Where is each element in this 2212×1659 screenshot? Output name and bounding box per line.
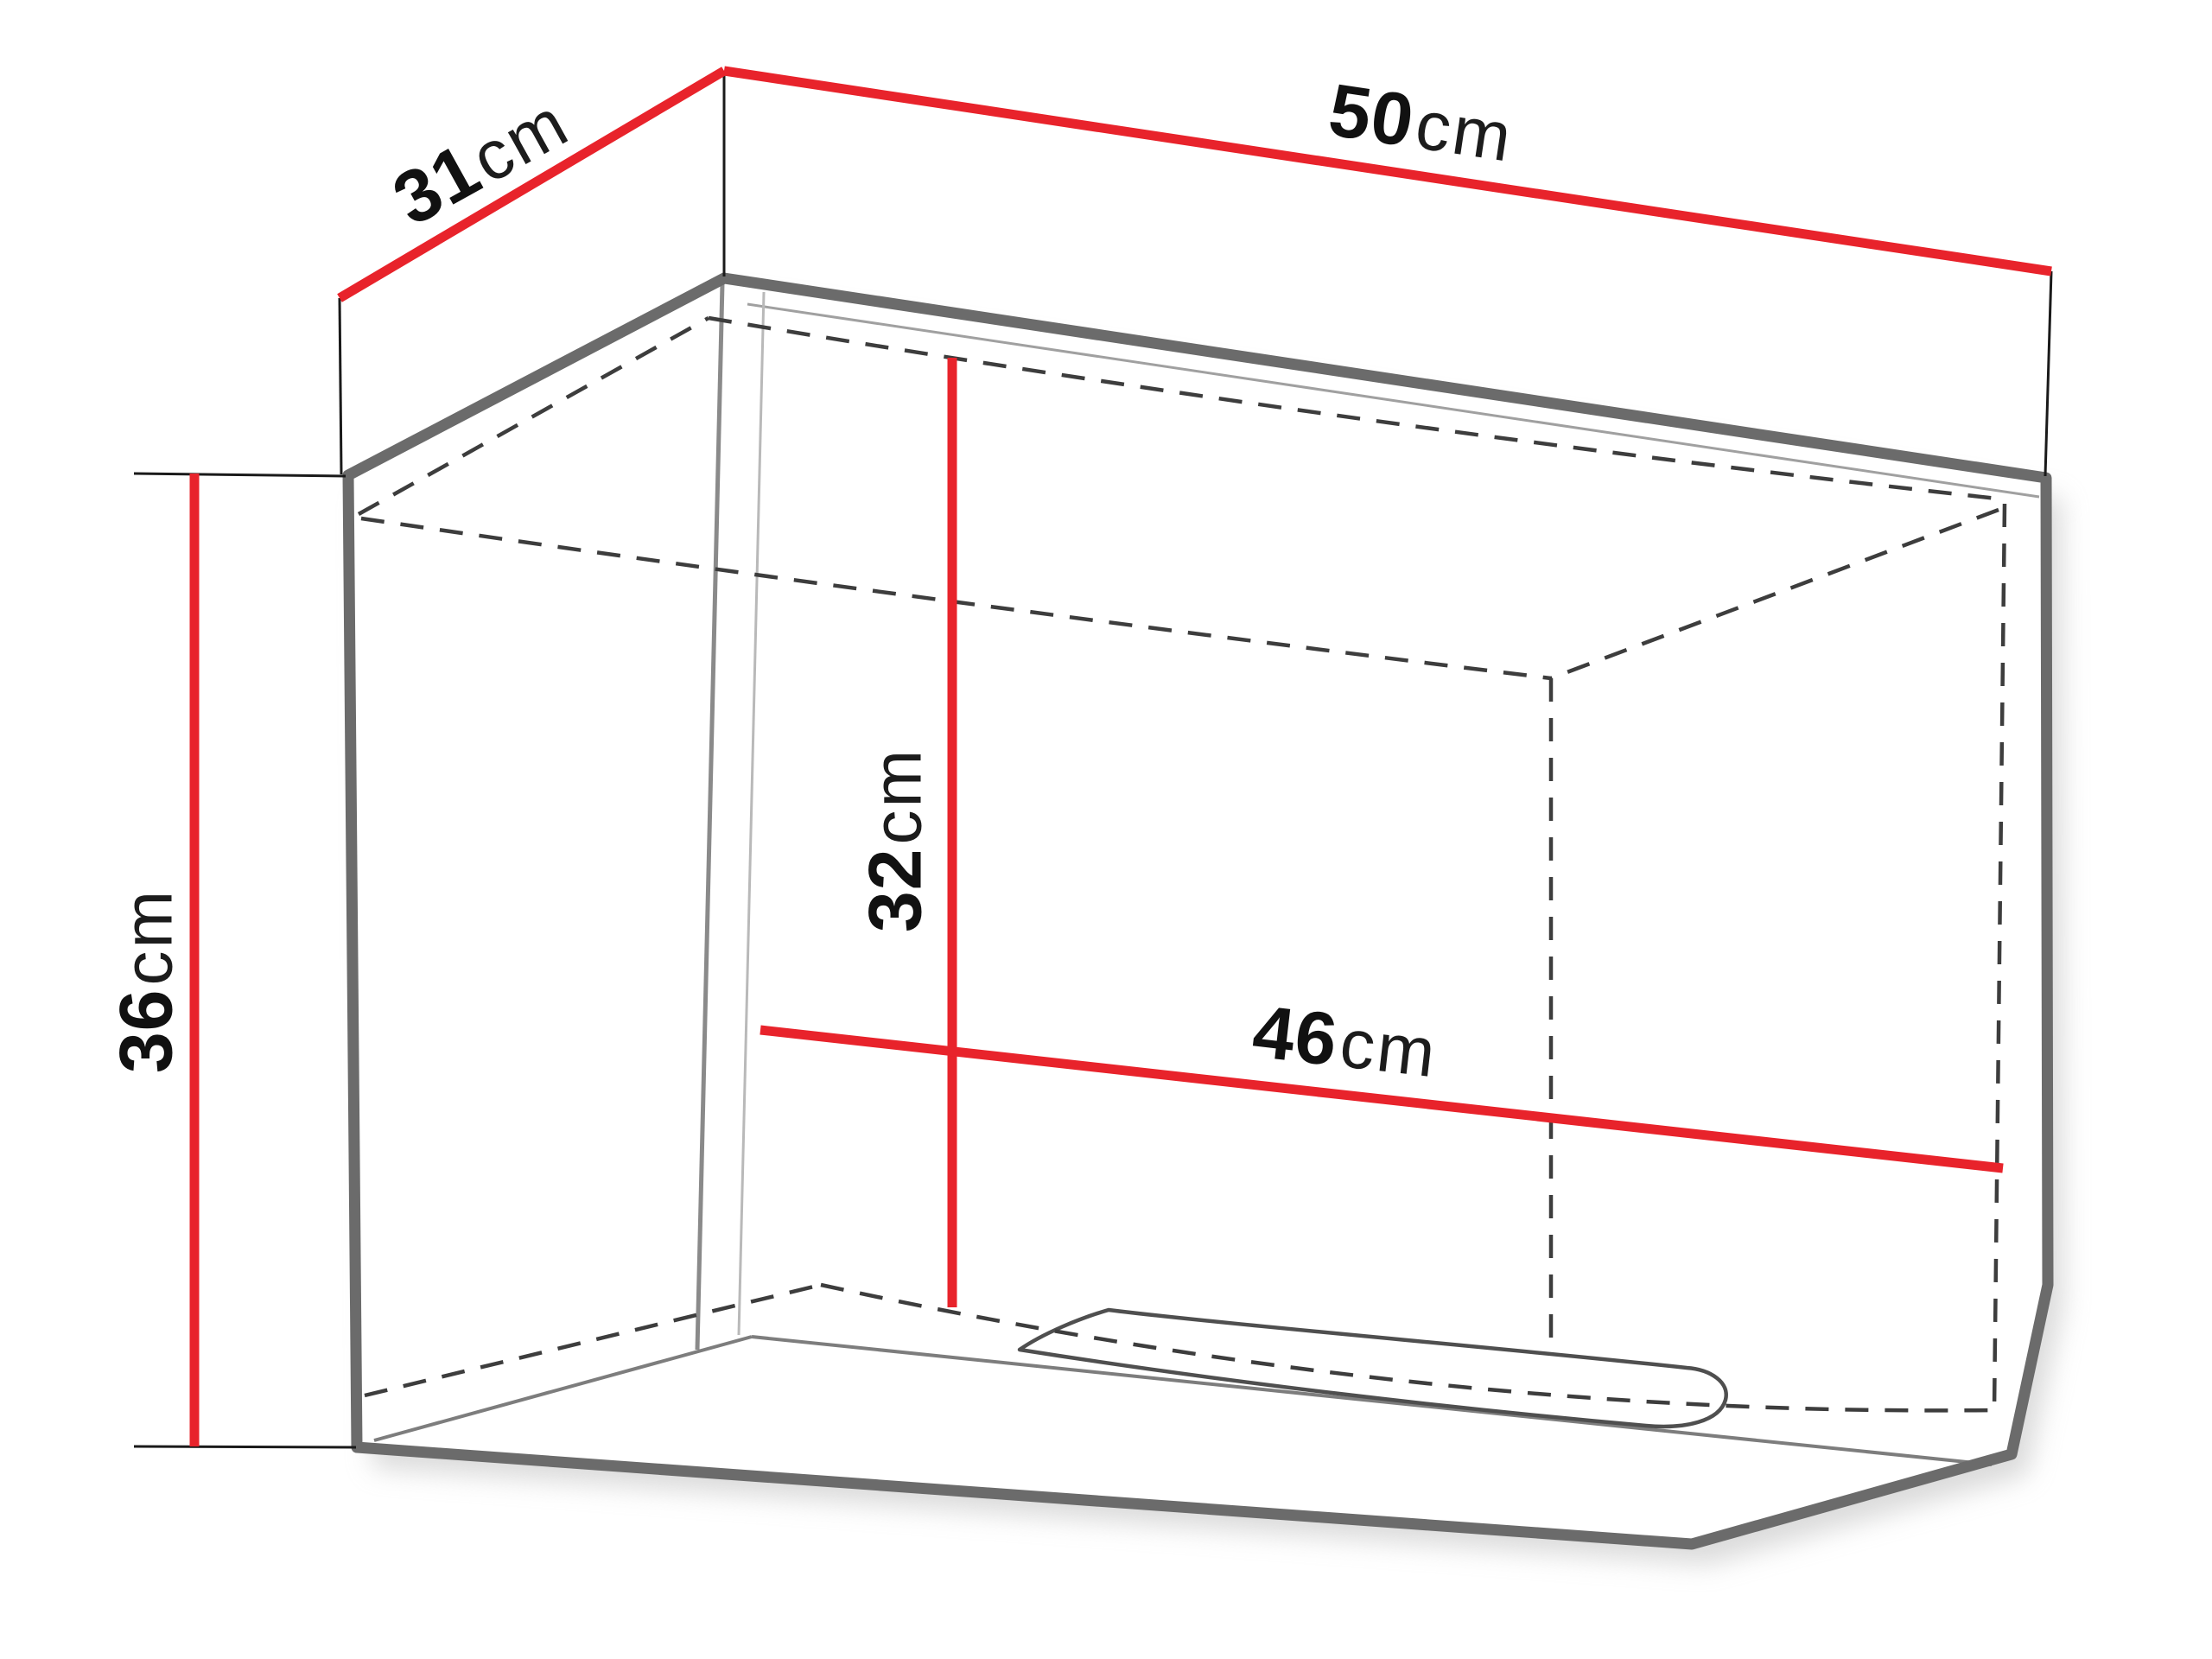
extension-line-height-top [134, 474, 346, 476]
technical-drawing [0, 0, 2212, 1659]
extension-line-height-bottom [134, 1446, 356, 1447]
extension-line-width-end [2045, 271, 2051, 476]
dimension-line-depth-31 [340, 71, 724, 298]
extension-line-depth-end [340, 298, 341, 474]
cabinet-dimension-diagram: 50 cm 31 cm 36 cm 32 cm 46 cm [0, 0, 2212, 1659]
dimension-line-width-50 [724, 71, 2051, 271]
